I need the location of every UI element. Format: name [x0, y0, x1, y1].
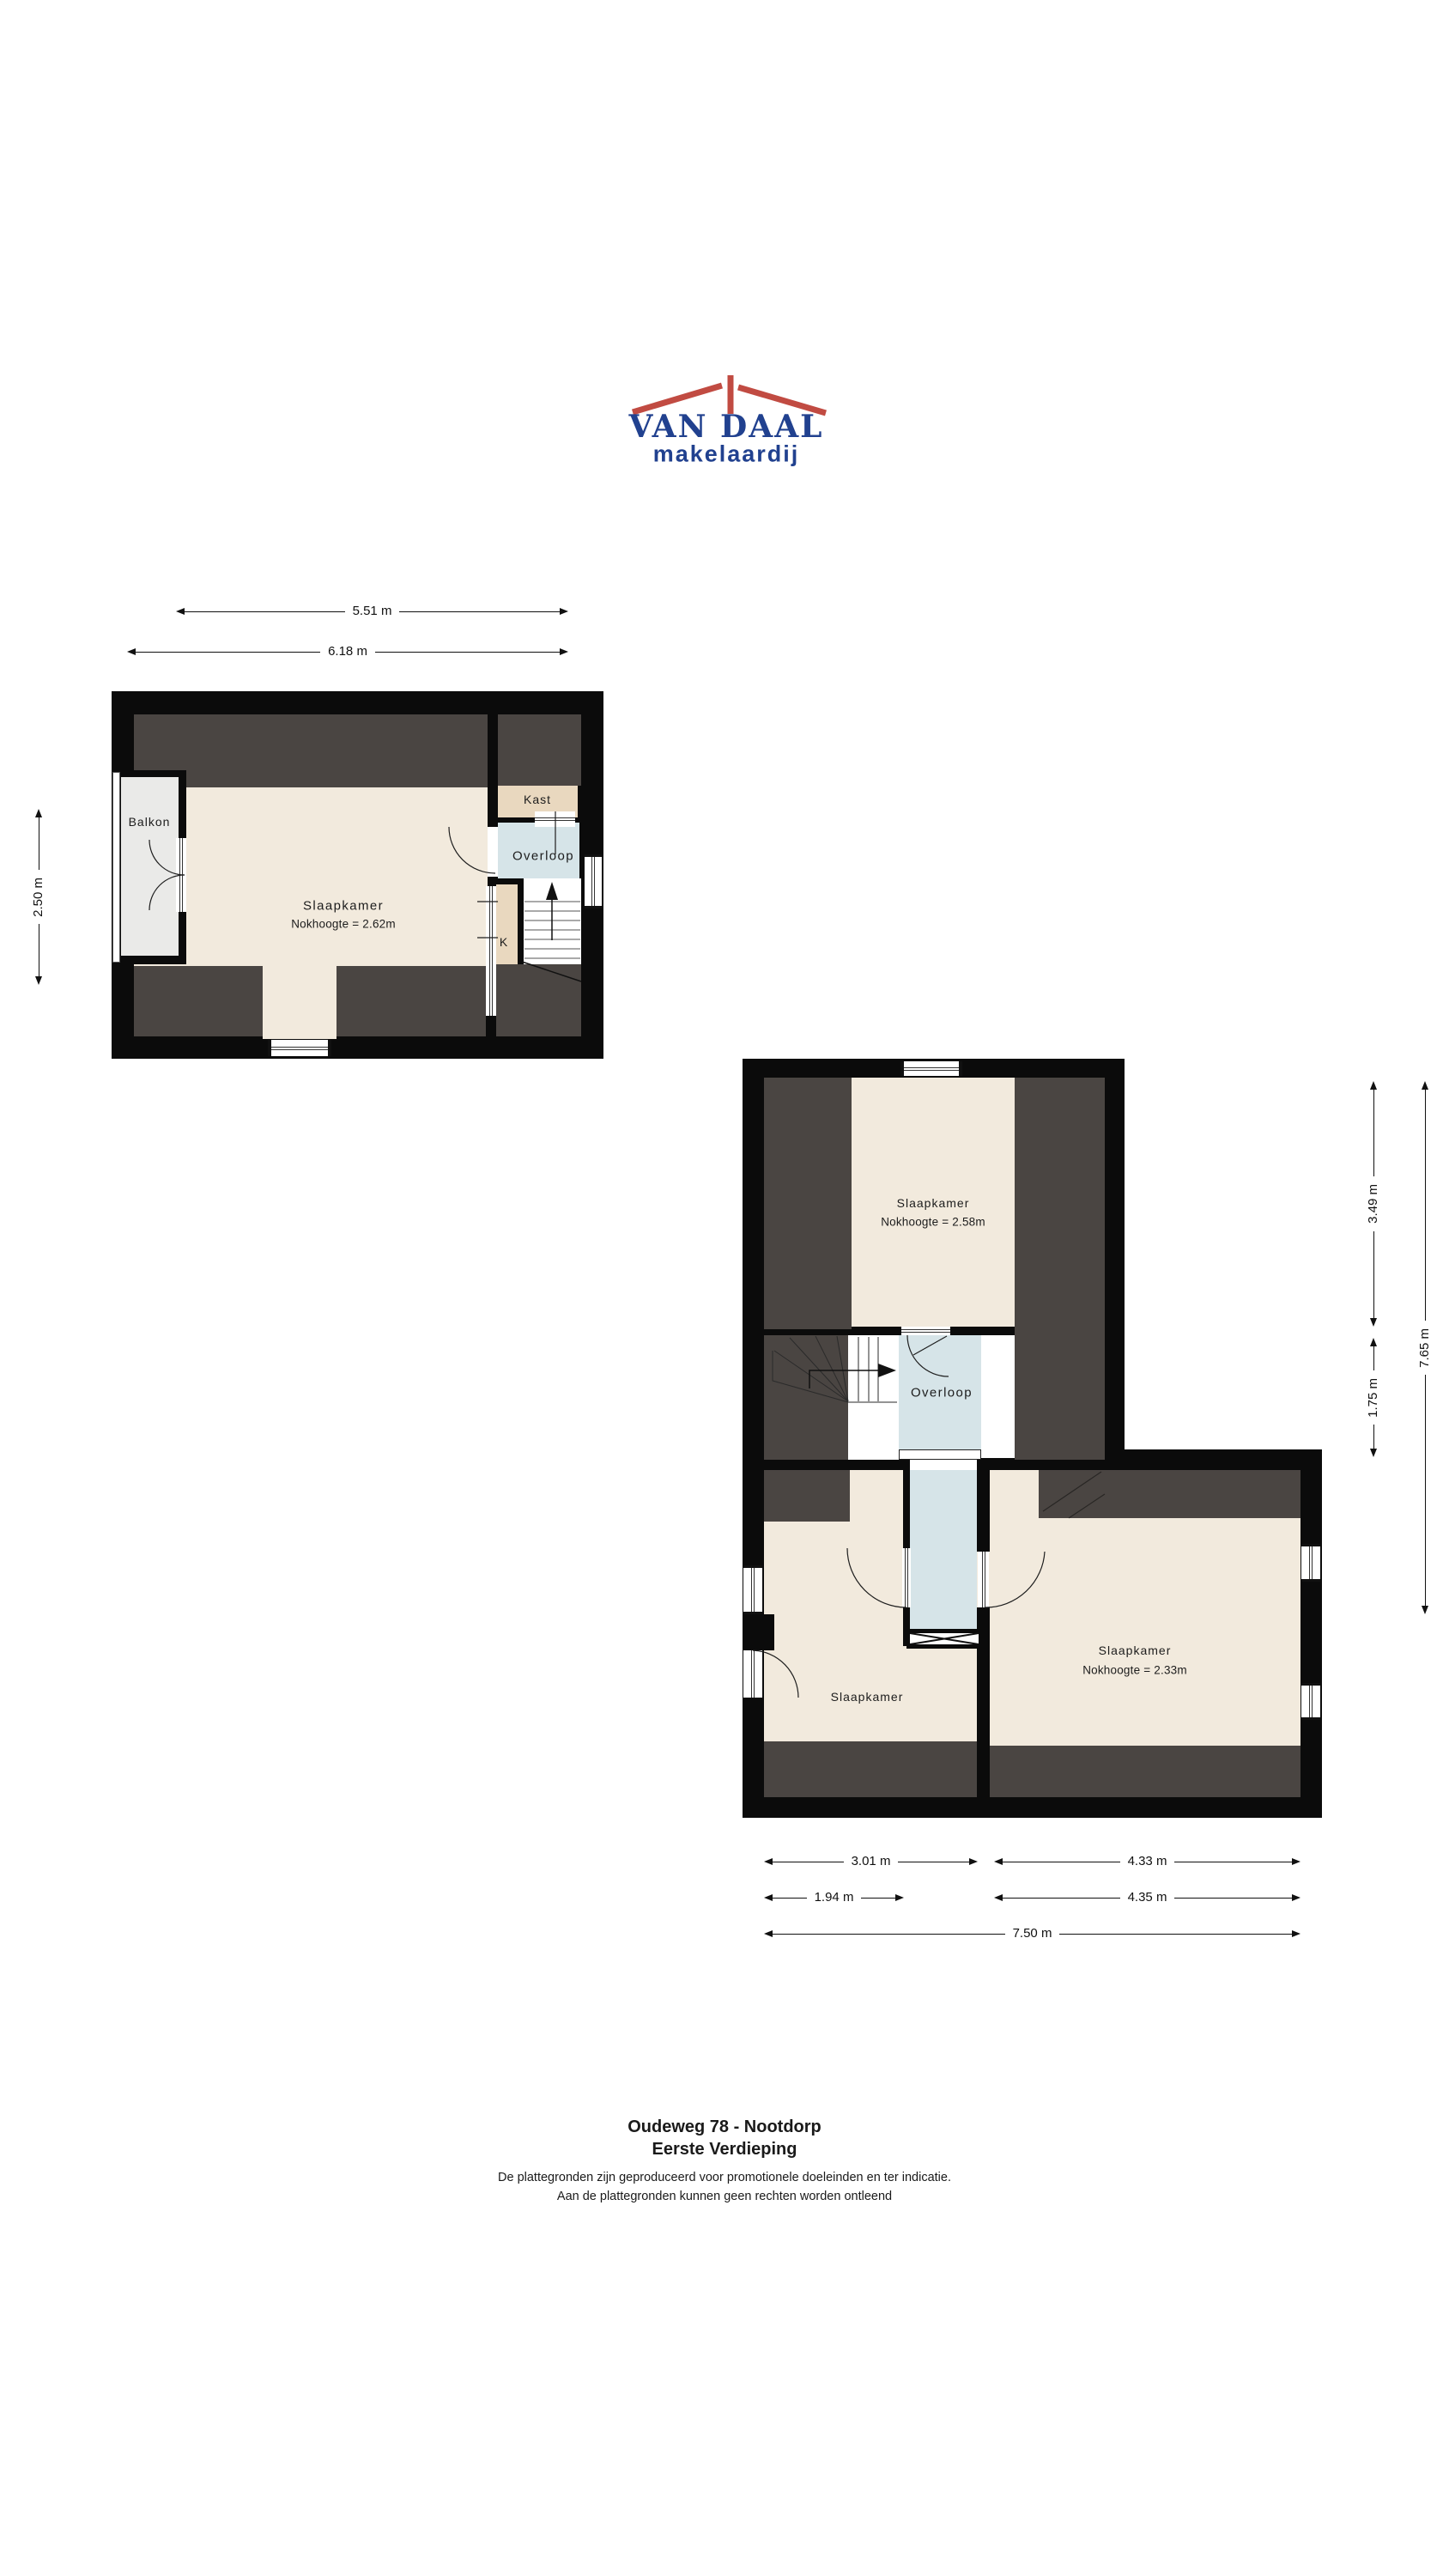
stairs-direction-line	[809, 1370, 882, 1388]
landing-door-leaf	[913, 1336, 947, 1355]
sloped-hatch-line	[1043, 1472, 1101, 1511]
dimension-inner-width: 5.51 m	[176, 605, 568, 617]
balcony-door-swing	[149, 875, 185, 910]
bedroom-left-door-swing	[847, 1548, 906, 1607]
room-label-slaapkamer-top: Slaapkamer	[897, 1196, 970, 1210]
dimension-bottom-total: 7.50 m	[764, 1928, 1300, 1940]
dimension-bottom-right-wide: 4.33 m	[994, 1856, 1300, 1868]
stairs-diagonal	[522, 962, 581, 981]
floorplan-1-details	[86, 670, 644, 1082]
room-label-overloop: Overloop	[911, 1386, 973, 1400]
footer-floor-name: Eerste Verdieping	[652, 2140, 797, 2160]
room-label-slaapkamer-left: Slaapkamer	[831, 1690, 904, 1704]
dimension-left-height: 2.50 m	[33, 809, 45, 985]
dimension-bottom-left-wide: 3.01 m	[764, 1856, 978, 1868]
dimension-right-mid: 1.75 m	[1367, 1338, 1379, 1457]
stairs-fan-line	[815, 1336, 848, 1401]
room-label-slaapkamer-right-height: Nokhoogte = 2.33m	[1082, 1664, 1187, 1677]
stairs-direction-arrow	[878, 1364, 896, 1377]
brand-tagline: makelaardij	[653, 441, 800, 468]
footer-address: Oudeweg 78 - Nootdorp	[627, 2117, 822, 2137]
dimension-bottom-left-narrow: 1.94 m	[764, 1892, 904, 1904]
stairs-winder-edge	[773, 1351, 848, 1402]
landing-door-swing	[907, 1335, 949, 1376]
footer-disclaimer-1: De plattegronden zijn geproduceerd voor …	[498, 2171, 951, 2184]
room-label-slaapkamer-height: Nokhoogte = 2.62m	[291, 918, 396, 931]
room-label-slaapkamer-right: Slaapkamer	[1099, 1643, 1172, 1657]
footer-disclaimer-2: Aan de plattegronden kunnen geen rechten…	[557, 2190, 892, 2203]
brand-name: VAN DAAL	[629, 409, 824, 445]
dimension-right-total: 7.65 m	[1419, 1081, 1431, 1614]
floorplan-2-details	[730, 1048, 1331, 1838]
bedroom-door-swing	[449, 827, 495, 873]
room-label-slaapkamer-top-height: Nokhoogte = 2.58m	[881, 1216, 985, 1229]
room-label-slaapkamer: Slaapkamer	[303, 899, 384, 914]
dimension-outer-width: 6.18 m	[127, 646, 568, 658]
dimension-right-top: 3.49 m	[1367, 1081, 1379, 1327]
balcony-door-swing	[149, 840, 185, 875]
stairs-fan-line	[790, 1338, 848, 1401]
room-label-kast: Kast	[524, 793, 551, 806]
stairs-direction-arrow	[546, 882, 558, 900]
room-label-k: K	[500, 935, 508, 949]
dimension-bottom-right-narrow: 4.35 m	[994, 1892, 1300, 1904]
sloped-hatch-line	[1069, 1494, 1105, 1518]
stairs-fan-line	[774, 1351, 848, 1401]
floorplan-page: VAN DAAL makelaardij	[0, 0, 1449, 2576]
left-wall-door-swing	[753, 1650, 798, 1698]
bedroom-right-door-swing	[985, 1552, 1045, 1607]
room-label-overloop: Overloop	[512, 849, 574, 864]
room-label-balkon: Balkon	[129, 815, 171, 829]
